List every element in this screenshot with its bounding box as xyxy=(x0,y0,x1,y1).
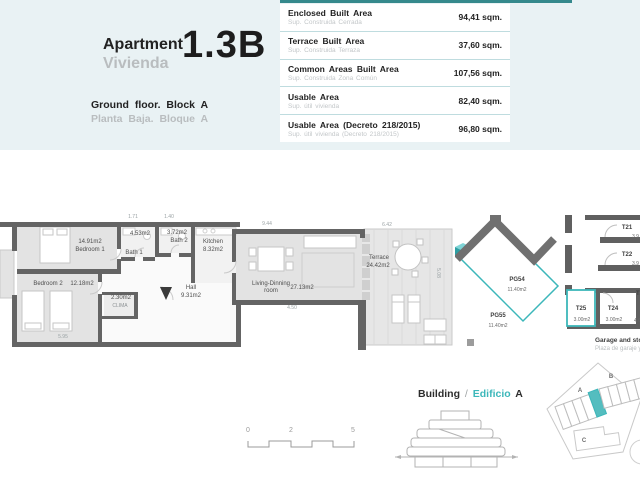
room-label-bedroom2: Bedroom 2 xyxy=(33,281,62,288)
room-label-kitchen-area: 8.32m2 xyxy=(203,247,223,254)
storage-id-t24: T24 xyxy=(608,306,618,312)
storage-id-t25: T25 xyxy=(576,306,586,312)
area-label-es: Sup. Construida Cerrada xyxy=(288,19,372,26)
room-label-bath2: Bath 2 xyxy=(170,238,187,245)
room-label-living: Living-Dinning room xyxy=(252,281,290,295)
garage-caption-en: Garage and storage room xyxy=(595,337,640,344)
area-value: 94,41 sqm. xyxy=(459,12,502,22)
building-label-separator: / xyxy=(465,388,468,400)
dimension-text: 5.95 xyxy=(58,334,68,340)
room-label-bath2-area: 3.72m2 xyxy=(167,230,187,237)
storage-area-t23: 4.6 xyxy=(634,318,640,324)
area-label-es: Sup. útil vivienda (Decreto 218/2015) xyxy=(288,131,420,138)
room-label-terrace: Terrace xyxy=(369,255,389,262)
table-row: Common Areas Built Area Sup. Construida … xyxy=(280,60,510,88)
dimension-text: 9.44 xyxy=(262,221,272,227)
site-plan xyxy=(545,358,640,480)
area-label-es: Sup. útil vivienda xyxy=(288,103,339,110)
area-label-en: Common Areas Built Area xyxy=(288,64,399,74)
parking-id-pg54: PG54 xyxy=(509,277,524,283)
parking-id-pg55: PG55 xyxy=(490,313,505,319)
room-label-bedroom1-area: 14.91m2 xyxy=(78,239,101,246)
apartment-title-en: Apartment xyxy=(103,36,183,54)
dimension-text: 5.08 xyxy=(435,268,441,278)
area-label-en: Terrace Built Area xyxy=(288,36,364,46)
parking-area-pg55: 11.40m2 xyxy=(488,323,507,329)
scale-label-5: 5 xyxy=(351,427,355,434)
garage-caption-es: Plaza de garaje y trastero xyxy=(595,346,640,352)
area-value: 82,40 sqm. xyxy=(459,96,502,106)
room-label-hall-area: 9.31m2 xyxy=(181,293,201,300)
area-label-es: Sup. Construida Terraza xyxy=(288,47,364,54)
storage-id-t21: T21 xyxy=(622,225,632,231)
apartment-unit-number: 1.3B xyxy=(182,24,266,67)
room-label-bath1-area: 4.53m2 xyxy=(130,231,150,238)
area-label-en: Enclosed Built Area xyxy=(288,8,372,18)
storage-area-t25: 3.00m2 xyxy=(574,317,591,323)
table-accent-bar xyxy=(280,0,572,3)
area-label-en: Usable Area xyxy=(288,92,339,102)
room-label-bath1: Bath 1 xyxy=(125,250,142,257)
plan-sheet: Apartment Vivienda 1.3B Ground floor. Bl… xyxy=(0,0,640,480)
storage-area-t21: 3.9 xyxy=(632,234,639,240)
room-label-bedroom1: Bedroom 1 xyxy=(75,247,104,254)
floor-label-en: Ground floor. Block A xyxy=(91,99,208,111)
area-label-en: Usable Area (Decreto 218/2015) xyxy=(288,120,420,130)
scale-bar xyxy=(240,438,362,452)
scale-label-0: 0 xyxy=(246,427,250,434)
dimension-text: 1.71 xyxy=(128,214,138,220)
area-value: 96,80 sqm. xyxy=(459,124,502,134)
site-roundabout xyxy=(630,440,640,464)
site-block-letter-c: C xyxy=(582,438,586,444)
room-label-hall: Hall xyxy=(186,285,196,292)
floor-label-es: Planta Baja. Bloque A xyxy=(91,113,208,125)
room-label-clima: CLIMA xyxy=(112,303,127,310)
storage-area-t24: 3.00m2 xyxy=(606,317,623,323)
area-label-es: Sup. Construida Zona Común xyxy=(288,75,399,82)
areas-table: Enclosed Built Area Sup. Construida Cerr… xyxy=(280,4,510,142)
building-label-en: Building xyxy=(418,388,460,400)
building-block-letter: A xyxy=(515,388,523,400)
room-label-terrace-area: 24.42m2 xyxy=(366,263,389,270)
room-label-kitchen: Kitchen xyxy=(203,239,223,246)
room-label-clima-area: 2.30m2 xyxy=(111,295,131,302)
storage-id-t23: T23 xyxy=(636,291,640,297)
dimension-text: 4.50 xyxy=(287,305,297,311)
garage-drawing xyxy=(455,190,640,360)
dimension-text: 6.42 xyxy=(382,222,392,228)
building-elevation-sketch xyxy=(395,405,520,470)
parking-area-pg54: 11.40m2 xyxy=(507,287,526,293)
dimension-text: 1.40 xyxy=(164,214,174,220)
apartment-title-es: Vivienda xyxy=(103,55,169,73)
building-label: Building / Edificio A xyxy=(418,388,523,400)
table-row: Usable Area (Decreto 218/2015) Sup. útil… xyxy=(280,115,510,142)
floorplan-drawing xyxy=(0,195,460,360)
site-block-letter-b: B xyxy=(609,374,613,380)
column-marker xyxy=(467,339,474,346)
site-block-letter-a: A xyxy=(578,388,582,394)
scale-label-2: 2 xyxy=(289,427,293,434)
room-label-living-area: 27.13m2 xyxy=(290,285,313,292)
storage-id-t22: T22 xyxy=(622,252,632,258)
table-row: Terrace Built Area Sup. Construida Terra… xyxy=(280,32,510,60)
table-row: Usable Area Sup. útil vivienda 82,40 sqm… xyxy=(280,87,510,115)
area-value: 37,60 sqm. xyxy=(459,40,502,50)
storage-area-t22: 3.9 xyxy=(632,261,639,267)
area-value: 107,56 sqm. xyxy=(454,68,502,78)
table-row: Enclosed Built Area Sup. Construida Cerr… xyxy=(280,4,510,32)
building-label-es: Edificio xyxy=(473,388,511,400)
room-label-bedroom2-area: 12.18m2 xyxy=(70,281,93,288)
